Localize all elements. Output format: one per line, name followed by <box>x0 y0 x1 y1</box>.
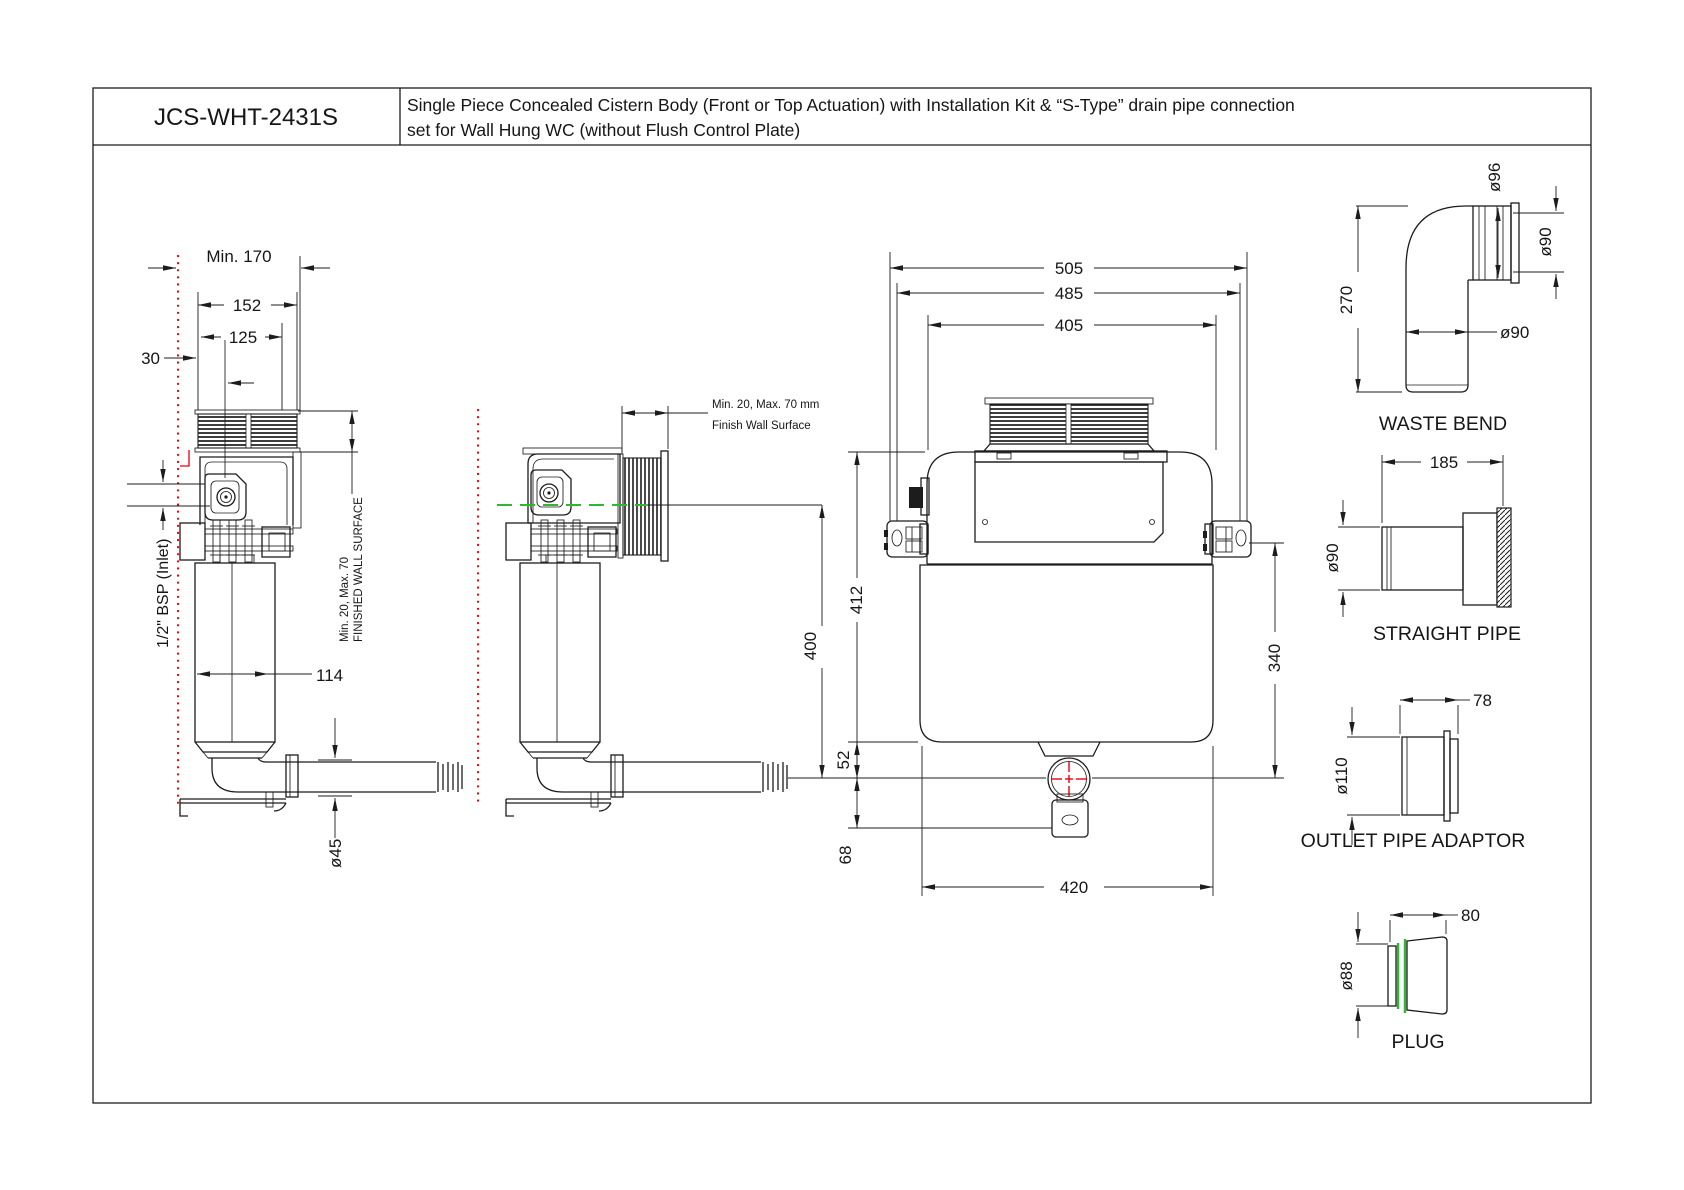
waste-bend-dimensions: 270 ø96 ø90 ø90 <box>1337 163 1564 392</box>
dim-30: 30 <box>141 349 160 368</box>
plug-label: PLUG <box>1391 1031 1444 1053</box>
dim-185: 185 <box>1430 453 1458 472</box>
dim-405: 405 <box>1055 316 1083 335</box>
outlet-pipe-adaptor-dimensions: 78 ø110 <box>1332 691 1492 845</box>
dim-485: 485 <box>1055 284 1083 303</box>
outlet-pipe-adaptor-part: 78 ø110 OUTLET PIPE ADAPTOR <box>1301 691 1526 852</box>
installed-view: Min. 20, Max. 70 mm Finish Wall Surface … <box>478 399 822 816</box>
outlet-pipe-adaptor-label: OUTLET PIPE ADAPTOR <box>1301 830 1526 852</box>
side-view-dimensions: Min. 170 152 125 30 Min. 20, Max. 70 FIN… <box>141 247 365 868</box>
dim-52: 52 <box>834 751 853 770</box>
model-number: JCS-WHT-2431S <box>154 104 338 131</box>
wall-note-line1: Min. 20, Max. 70 <box>339 557 351 642</box>
dim-dia-88: ø88 <box>1337 961 1356 990</box>
waste-bend-label: WASTE BEND <box>1379 413 1507 435</box>
inlet-label: 1/2" BSP (Inlet) <box>155 539 172 648</box>
straight-pipe-part: 185 ø90 STRAIGHT PIPE <box>1323 453 1521 645</box>
dim-dia-45: ø45 <box>326 839 345 868</box>
dim-505: 505 <box>1055 259 1083 278</box>
title-block: JCS-WHT-2431S Single Piece Concealed Cis… <box>93 88 1591 1103</box>
plug-dimensions: 80 ø88 <box>1337 906 1480 1038</box>
dim-400: 400 <box>801 632 820 660</box>
wall-note-line2: FINISHED WALL SURFACE <box>353 497 365 642</box>
installed-view-dimensions: Min. 20, Max. 70 mm Finish Wall Surface … <box>622 399 822 778</box>
dim-dia-90-straight: ø90 <box>1323 543 1342 572</box>
dim-68: 68 <box>836 846 855 865</box>
product-description-line1: Single Piece Concealed Cistern Body (Fro… <box>407 95 1295 115</box>
product-description-line2: set for Wall Hung WC (without Flush Cont… <box>407 120 800 140</box>
dim-78: 78 <box>1473 691 1492 710</box>
straight-pipe-dimensions: 185 ø90 <box>1323 453 1503 617</box>
dim-420: 420 <box>1060 878 1088 897</box>
waste-bend-part: 270 ø96 ø90 ø90 WASTE BEND <box>1337 163 1564 435</box>
dim-dia-110: ø110 <box>1332 757 1351 795</box>
front-view: 505 485 405 412 52 68 340 <box>788 252 1284 897</box>
dim-270: 270 <box>1337 286 1356 314</box>
finish-wall-note-line1: Min. 20, Max. 70 mm <box>712 399 819 411</box>
dim-80: 80 <box>1461 906 1480 925</box>
straight-pipe-label: STRAIGHT PIPE <box>1373 623 1521 645</box>
dim-114: 114 <box>316 666 343 685</box>
plug-part: 80 ø88 PLUG <box>1337 906 1480 1053</box>
drawing-canvas: JCS-WHT-2431S Single Piece Concealed Cis… <box>0 0 1684 1190</box>
side-view: Min. 170 152 125 30 Min. 20, Max. 70 FIN… <box>127 247 462 868</box>
dim-dia-96: ø96 <box>1485 163 1504 192</box>
dim-125: 125 <box>229 328 257 347</box>
dim-dia-90-socket: ø90 <box>1536 227 1555 256</box>
dim-412: 412 <box>847 586 866 614</box>
right-wall-bracket <box>1203 521 1251 557</box>
dim-dia-90-pipe: ø90 <box>1500 323 1529 342</box>
dim-min-170: Min. 170 <box>206 247 271 266</box>
finish-wall-note-line2: Finish Wall Surface <box>712 420 811 432</box>
technical-drawing-page: JCS-WHT-2431S Single Piece Concealed Cis… <box>0 0 1684 1190</box>
front-view-dimensions: 505 485 405 412 52 68 340 <box>788 252 1284 897</box>
dim-340: 340 <box>1265 644 1284 672</box>
left-wall-bracket <box>884 521 928 557</box>
dim-152: 152 <box>233 296 261 315</box>
